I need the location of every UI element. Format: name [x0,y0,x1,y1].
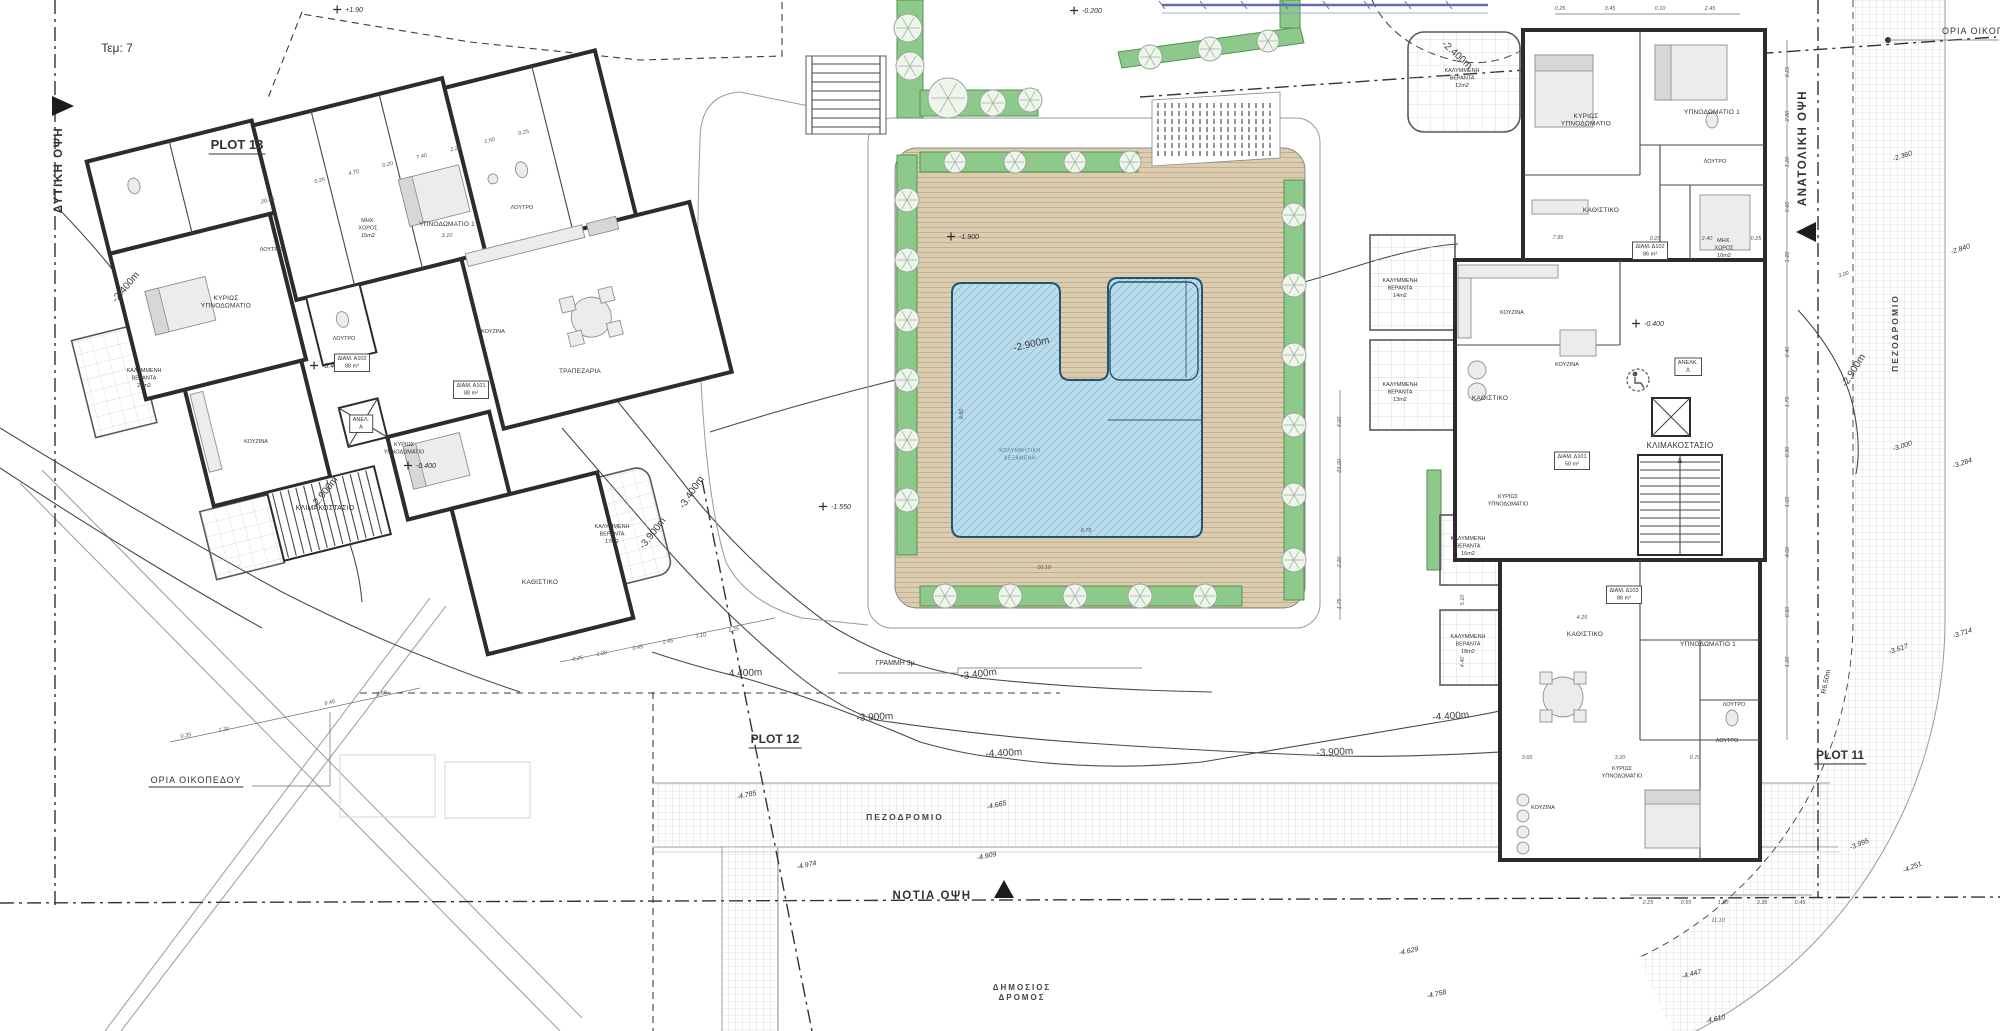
dims-label: 11.10 [1711,918,1725,924]
dims-label: 1.20 [1785,251,1791,263]
pool-label: ΚΟΛΥΜΒΗΤΙΚΗΔΕΞΑΜΕΝΗ [999,448,1040,462]
site-plan-page: Τεμ: 7PLOT 13PLOT 12PLOT 11ΔΥΤΙΚΗ ΟΨΗΑΝΑ… [0,0,2000,1031]
plant-icon [1063,584,1087,608]
public-road-label: ΔΗΜΟΣΙΟΣΔΡΟΜΟΣ [993,983,1051,1002]
rooms_right-label: ΥΠΝΟΔΩΜΑΤΙΟ 1 [1680,641,1736,648]
spots-label: -0.200 [1082,8,1102,15]
spots-label: -4.251 [1902,861,1923,875]
dims-label: 0.60 [376,690,389,698]
rooms_left-label: ΚΑΘΙΣΤΙΚΟ [522,579,558,586]
dims-label: 1.45 [662,638,675,646]
dims-label: 2.80 [1785,110,1791,123]
west-elevation-label: ΔΥΤΙΚΗ ΟΨΗ [53,127,65,213]
plant-icon [1119,151,1141,173]
plant-icon [894,14,922,42]
spots-label: -3.714 [1952,627,1973,640]
contours-label: -4.400m [725,667,762,679]
plot-11-label: PLOT 11 [1816,748,1864,762]
terrace-ramp-hatch [1152,92,1280,166]
dims-label: 1.75 [1337,598,1343,610]
spots-label: -0.400 [416,463,436,470]
rooms_right-label: ΥΠΝΟΔΩΜΑΤΙΟ 1 [1684,109,1740,116]
plant-icon [1018,88,1042,112]
rooms_left-label: ΚΟΥΖΙΝΑ [481,329,505,335]
plant-icon [1282,273,1306,297]
dims-label: 4.00 [1785,546,1791,558]
plant-icon [1282,203,1306,227]
dims-label: 0.70 [1690,755,1702,761]
west-elevation-marker [52,96,74,116]
rooms_right-label: ΛΟΥΤΡΟ [1723,702,1746,708]
dims-label: 10.10 [1037,565,1052,571]
pool-terrace [698,0,1441,628]
radius-label: R6.50m [1821,669,1833,695]
contours-label: -3.900m [856,711,893,724]
dims-label: 0.25 [1751,236,1763,242]
dims-label: 1.65 [1785,496,1791,508]
dims-label: 2.20 [1337,556,1343,569]
dims-label: 2.40 [1701,236,1714,242]
dims-label: 0.55 [1681,900,1693,906]
plant-icon [1004,151,1026,173]
spots-label: +1.90 [345,7,363,14]
rooms_right-label: ΚΛΙΜΑΚΟΣΤΑΣΙΟ [1647,441,1714,450]
plant-icon [896,52,924,80]
setback-line-label: ΓΡΑΜΜΗ 3μ. [875,660,916,667]
dims-label: 1.20 [1785,156,1791,168]
terrace-stairs [806,56,886,134]
contours-label: -3.400m [677,474,707,511]
rooms_left-label: ΚΟΥΖΙΝΑ [244,439,268,445]
rooms_right-label: ΛΟΥΤΡΟ [1704,159,1727,165]
plant-icon [895,308,919,332]
dims-label: 3.35 [1757,900,1769,906]
plant-icon [895,368,919,392]
plant-icon [895,188,919,212]
site-plan-canvas: Τεμ: 7PLOT 13PLOT 12PLOT 11ΔΥΤΙΚΗ ΟΨΗΑΝΑ… [0,0,2000,1031]
rooms_left-label: ΚΛΙΜΑΚΟΣΤΑΣΙΟ [296,505,355,512]
dims-label: 0.35 [180,732,193,740]
plant-icon [1282,343,1306,367]
dims-label: 0.25 [572,655,585,663]
dims-label: 1.75 [1785,396,1791,408]
plant-icon [1198,37,1222,61]
dims-label: 3.20 [1615,755,1627,761]
plot-12-label: PLOT 12 [751,732,800,746]
plant-icon [1282,413,1306,437]
sidewalk-label-east: ΠΕΖΟΔΡΟΜΙΟ [1890,294,1900,372]
dims-label: 3.65 [1522,755,1534,761]
sidewalk-label-south: ΠΕΖΟΔΡΟΜΙΟ [866,812,944,822]
dims-label: 0.45 [1795,900,1807,906]
plant-icon [980,90,1006,116]
plant-icon [1138,45,1162,69]
scale-bar [1159,1,1488,13]
dims-label: 2.25 [1642,900,1655,906]
dims-label: 3.10 [695,632,708,640]
spot-elevation-marker [333,6,341,14]
south-elevation-marker [994,880,1014,898]
plant-icon [895,488,919,512]
spots-label: -4.758 [1426,989,1447,1000]
plant-icon [1193,584,1217,608]
spot-elevation-marker [819,503,827,511]
dims-label: 0.60 [1785,201,1791,213]
dims-label: 9.45 [324,699,337,707]
rooms_left-label: ΤΡΑΠΕΖΑΡΙΑ [559,368,601,375]
south-elevation-label: ΝΟΤΙΑ ΟΨΗ [892,890,971,902]
rooms_left-label: ΛΟΥΤΡΟ [260,247,283,253]
spots-label: -0.400 [1644,321,1664,328]
dims-label: 3.10 [442,233,454,239]
spot-elevation-marker [1070,7,1078,15]
dims-label: 0.90 [1785,446,1791,458]
rooms_right-label: ΚΟΥΖΙΝΑ [1555,362,1579,368]
spots-label: -4.629 [1398,946,1419,957]
plot-13-label: PLOT 13 [211,137,264,152]
spot-elevation-marker [310,362,318,370]
plant-icon [1282,483,1306,507]
plot-boundary-label-sw: ΟΡΙΑ ΟΙΚΟΠΕΔΟΥ [151,775,242,785]
dims-label: 1.20 [596,650,609,658]
dims-label: 0.45 [632,644,645,652]
dims-label: 3.00 [1838,270,1851,279]
rooms_left-label: ΥΠΝΟΔΩΜΑΤΙΟ 1 [419,221,475,228]
spots-label: -4.909 [976,851,997,862]
dims-label: 3.45 [1605,6,1617,12]
dims-label: 2.45 [1704,6,1717,12]
dims-label: 9.80 [959,408,965,420]
plant-icon [1282,548,1306,572]
spots-label: -1.550 [831,504,851,511]
dims-label: 23.20 [1337,458,1343,474]
dims-label: 1.20 [1785,656,1791,668]
dims-label: 0.25 [1555,6,1567,12]
rooms_right-label: ΚΟΥΖΙΝΑ [1500,310,1524,316]
plant-icon [1257,30,1279,52]
plant-icon [895,428,919,452]
dims-label: 4.40 [1460,656,1466,668]
rooms_right-label: ΛΟΥΤΡΟ [1716,738,1739,744]
plant-icon [928,78,968,118]
spots-label: -1.900 [959,234,979,241]
dims-label: 7.95 [1553,235,1565,241]
contours-label: -4.400m [985,747,1022,760]
dims-label: 8.75 [1081,528,1093,534]
dims-label: 0.25 [1785,66,1791,78]
plant-icon [895,248,919,272]
dims-label: 5.10 [1460,594,1466,606]
rooms_left-label: ΛΟΥΤΡΟ [511,205,534,211]
dims-label: 1.25 [728,626,741,634]
dims-label: 0.60 [1785,606,1791,618]
plant-icon [933,584,957,608]
dims-label: 0.10 [1655,6,1667,12]
rooms_right-label: ΚΑΘΙΣΤΙΚΟ [1567,631,1603,638]
east-elevation-label: ΑΝΑΤΟΛΙΚΗ ΟΨΗ [1797,90,1809,206]
plant-icon [998,584,1022,608]
plant-icon [1064,151,1086,173]
dims-label: 0.25 [1650,236,1662,242]
plant-icon [1128,584,1152,608]
rooms_left-label: ΛΟΥΤΡΟ [333,336,356,342]
rooms_right-label: Δ [1678,458,1683,465]
spots-label: -4.974 [796,860,817,871]
dims-label: 4.25 [1577,615,1589,621]
rooms_right-label: ΚΑΘΙΣΤΙΚΟ [1583,207,1619,214]
dims-label: 1.50 [1718,900,1730,906]
plot-boundary-label-ne: ΟΡΙΑ ΟΙΚΟΠΕΔΟΥ [1942,26,2000,36]
dims-label: 0.40 [1785,346,1791,358]
dims-label: 4.00 [1337,416,1343,428]
sidewalk-west-branch [722,847,778,1031]
dims-label: 1.30 [218,726,231,734]
spots-label: -3.284 [1952,457,1973,470]
east-elevation-marker [1796,222,1816,242]
parcel-label: Τεμ: 7 [101,41,133,55]
spots-label: -2.840 [1950,243,1971,256]
contours-label: -4.400m [1432,710,1469,724]
plant-icon [944,151,966,173]
rooms_right-label: ΚΟΥΖΙΝΑ [1531,805,1555,811]
contours-label: -3.900m [1316,746,1353,759]
rooms_right-label: ΚΑΘΙΣΤΙΚΟ [1472,395,1508,402]
